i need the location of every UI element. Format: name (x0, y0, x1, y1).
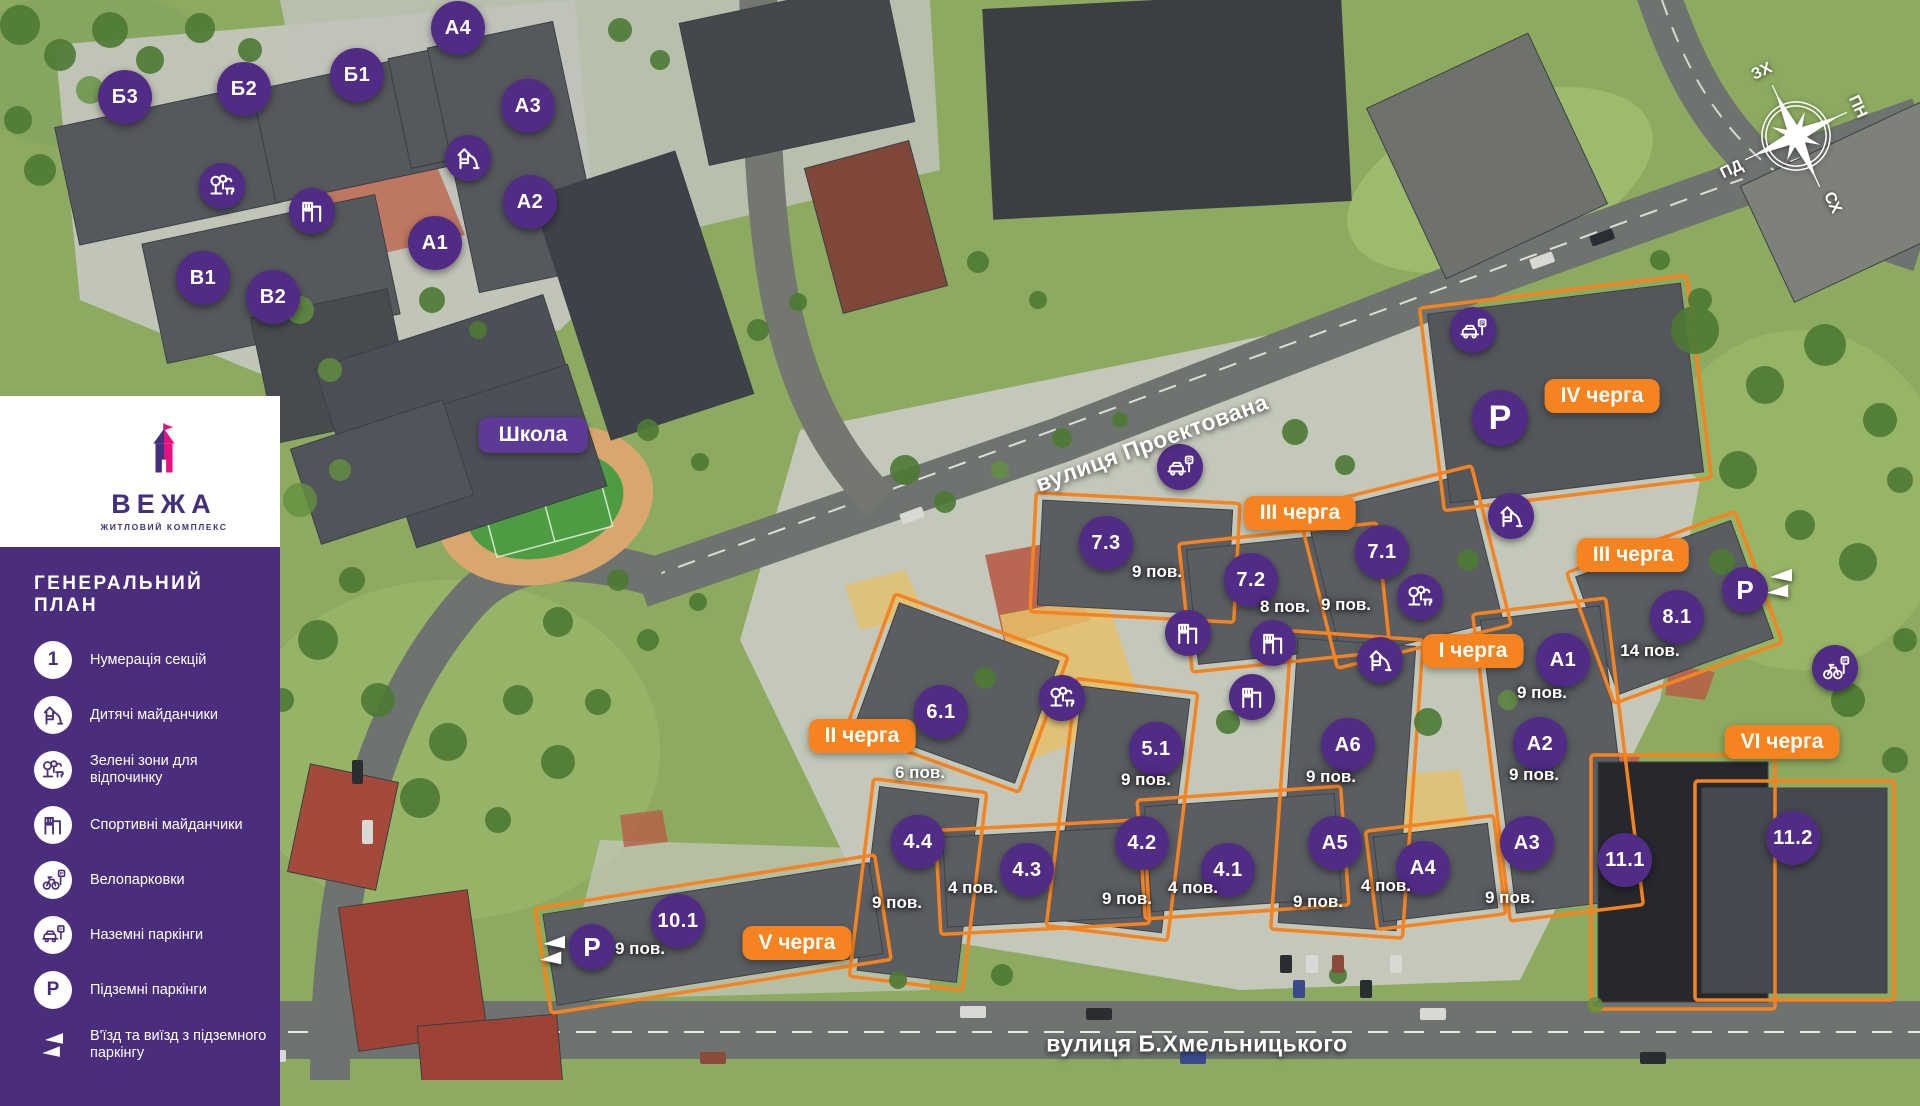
section-marker-5.1[interactable]: 5.1 (1129, 722, 1183, 776)
phase-badge: III черга (1577, 538, 1689, 572)
playground-icon (1357, 637, 1403, 683)
legend-item-label: Дитячі майданчики (90, 707, 218, 724)
entrance-icon (530, 927, 576, 973)
green-zone-icon (199, 163, 245, 209)
section-marker-6.1[interactable]: 6.1 (914, 685, 968, 739)
section-marker-В1[interactable]: В1 (176, 251, 230, 305)
section-marker-7.3[interactable]: 7.3 (1079, 516, 1133, 570)
phase-badge: I черга (1423, 634, 1524, 668)
sport-icon (1229, 674, 1275, 720)
surface-parking-icon (1450, 307, 1496, 353)
floors-label: 9 пов. (1485, 888, 1535, 908)
playground-icon (34, 696, 72, 734)
section-marker-В2[interactable]: В2 (246, 270, 300, 324)
underground-parking-icon: P (1472, 390, 1528, 446)
floors-label: 9 пов. (872, 893, 922, 913)
section-number-icon: 1 (34, 641, 72, 679)
logo-name: ВЕЖА (111, 489, 216, 520)
logo-panel: ВЕЖА ЖИТЛОВИЙ КОМПЛЕКС (0, 396, 280, 547)
sidebar: ВЕЖА ЖИТЛОВИЙ КОМПЛЕКС ГЕНЕРАЛЬНИЙ ПЛАН … (0, 396, 280, 1106)
section-marker-11.1[interactable]: 11.1 (1598, 833, 1652, 887)
legend-item-entrance: В'їзд та виїзд з підземного паркінгу (34, 1026, 268, 1064)
section-marker-4.2[interactable]: 4.2 (1115, 816, 1169, 870)
legend-item-green-zone: Зелені зони для відпочинку (34, 751, 268, 789)
legend-item-underground-parking: P Підземні паркінги (34, 971, 268, 1009)
icon-glyph: 1 (48, 649, 59, 671)
green-zone-icon (34, 751, 72, 789)
phase-badge: V черга (743, 926, 852, 960)
sport-icon (34, 806, 72, 844)
bike-parking-icon (34, 861, 72, 899)
floors-label: 6 пов. (895, 763, 945, 783)
floors-label: 4 пов. (1361, 876, 1411, 896)
section-marker-А6[interactable]: А6 (1321, 718, 1375, 772)
surface-parking-icon (34, 916, 72, 954)
marker-layer: I чергаII чергаIII чергаIII чергаIV черг… (0, 0, 1920, 1080)
section-marker-А1[interactable]: А1 (1536, 633, 1590, 687)
legend-item-section-number: 1 Нумерація секцій (34, 641, 268, 679)
underground-parking-icon: P (34, 971, 72, 1009)
phase-badge: II черга (809, 719, 916, 753)
legend-item-label: Наземні паркінги (90, 927, 203, 944)
floors-label: 9 пов. (1517, 683, 1567, 703)
legend-item-label: Велопарковки (90, 872, 185, 889)
section-marker-А2[interactable]: А2 (503, 175, 557, 229)
icon-glyph: P (1736, 575, 1753, 606)
legend-item-sport: Спортивні майданчики (34, 806, 268, 844)
playground-icon (445, 135, 491, 181)
entrance-icon (1757, 560, 1803, 606)
tower-logo-icon (148, 411, 180, 487)
entrance-icon (34, 1026, 72, 1064)
legend-list: 1 Нумерація секцій Дитячі майданчики Зел… (34, 641, 268, 1064)
floors-label: 9 пов. (1102, 889, 1152, 909)
floors-label: 14 пов. (1620, 641, 1679, 661)
floors-label: 9 пов. (1321, 595, 1371, 615)
floors-label: 8 пов. (1260, 597, 1310, 617)
legend-item-label: Зелені зони для відпочинку (90, 753, 268, 786)
sport-icon (1250, 620, 1296, 666)
street-label: вулиця Б.Хмельницького (1046, 1031, 1347, 1058)
section-marker-А4[interactable]: А4 (431, 1, 485, 55)
section-marker-А2[interactable]: А2 (1513, 717, 1567, 771)
bike-parking-icon (1812, 645, 1858, 691)
legend-title: ГЕНЕРАЛЬНИЙ ПЛАН (34, 573, 268, 617)
section-marker-Б2[interactable]: Б2 (217, 62, 271, 116)
section-marker-4.4[interactable]: 4.4 (891, 815, 945, 869)
floors-label: 9 пов. (1121, 770, 1171, 790)
floors-label: 9 пов. (615, 939, 665, 959)
section-marker-А1[interactable]: А1 (408, 216, 462, 270)
phase-badge: IV черга (1545, 379, 1660, 413)
section-marker-А3[interactable]: А3 (501, 79, 555, 133)
legend-item-surface-parking: Наземні паркінги (34, 916, 268, 954)
legend-item-label: Спортивні майданчики (90, 817, 243, 834)
phase-badge: VI черга (1725, 725, 1840, 759)
section-marker-8.1[interactable]: 8.1 (1650, 590, 1704, 644)
floors-label: 9 пов. (1509, 765, 1559, 785)
section-marker-Б3[interactable]: Б3 (98, 70, 152, 124)
icon-glyph: P (1489, 399, 1512, 438)
floors-label: 9 пов. (1132, 562, 1182, 582)
legend-item-label: Підземні паркінги (90, 982, 207, 999)
phase-badge: III черга (1244, 496, 1356, 530)
legend-item-label: В'їзд та виїзд з підземного паркінгу (90, 1028, 268, 1061)
floors-label: 9 пов. (1293, 892, 1343, 912)
green-zone-icon (1397, 574, 1443, 620)
section-marker-4.3[interactable]: 4.3 (1000, 843, 1054, 897)
legend-item-playground: Дитячі майданчики (34, 696, 268, 734)
street-label: вулиця Проектована (1032, 388, 1271, 497)
floors-label: 4 пов. (948, 878, 998, 898)
section-marker-А5[interactable]: А5 (1308, 816, 1362, 870)
section-marker-11.2[interactable]: 11.2 (1766, 811, 1820, 865)
icon-glyph: P (47, 979, 60, 1001)
section-marker-Б1[interactable]: Б1 (330, 48, 384, 102)
floors-label: 9 пов. (1306, 767, 1356, 787)
section-marker-А3[interactable]: А3 (1500, 816, 1554, 870)
sport-icon (1165, 610, 1211, 656)
logo-subtitle: ЖИТЛОВИЙ КОМПЛЕКС (100, 522, 227, 532)
legend-panel: ГЕНЕРАЛЬНИЙ ПЛАН 1 Нумерація секцій Дитя… (0, 547, 280, 1106)
sport-icon (289, 188, 335, 234)
legend-item-label: Нумерація секцій (90, 652, 206, 669)
section-marker-7.1[interactable]: 7.1 (1355, 525, 1409, 579)
green-zone-icon (1039, 675, 1085, 721)
playground-icon (1488, 493, 1534, 539)
school-badge: Школа (479, 417, 588, 453)
map-canvas: I чергаII чергаIII чергаIII чергаIV черг… (0, 0, 1920, 1080)
legend-item-bike-parking: Велопарковки (34, 861, 268, 899)
icon-glyph: P (583, 932, 600, 963)
floors-label: 4 пов. (1168, 878, 1218, 898)
